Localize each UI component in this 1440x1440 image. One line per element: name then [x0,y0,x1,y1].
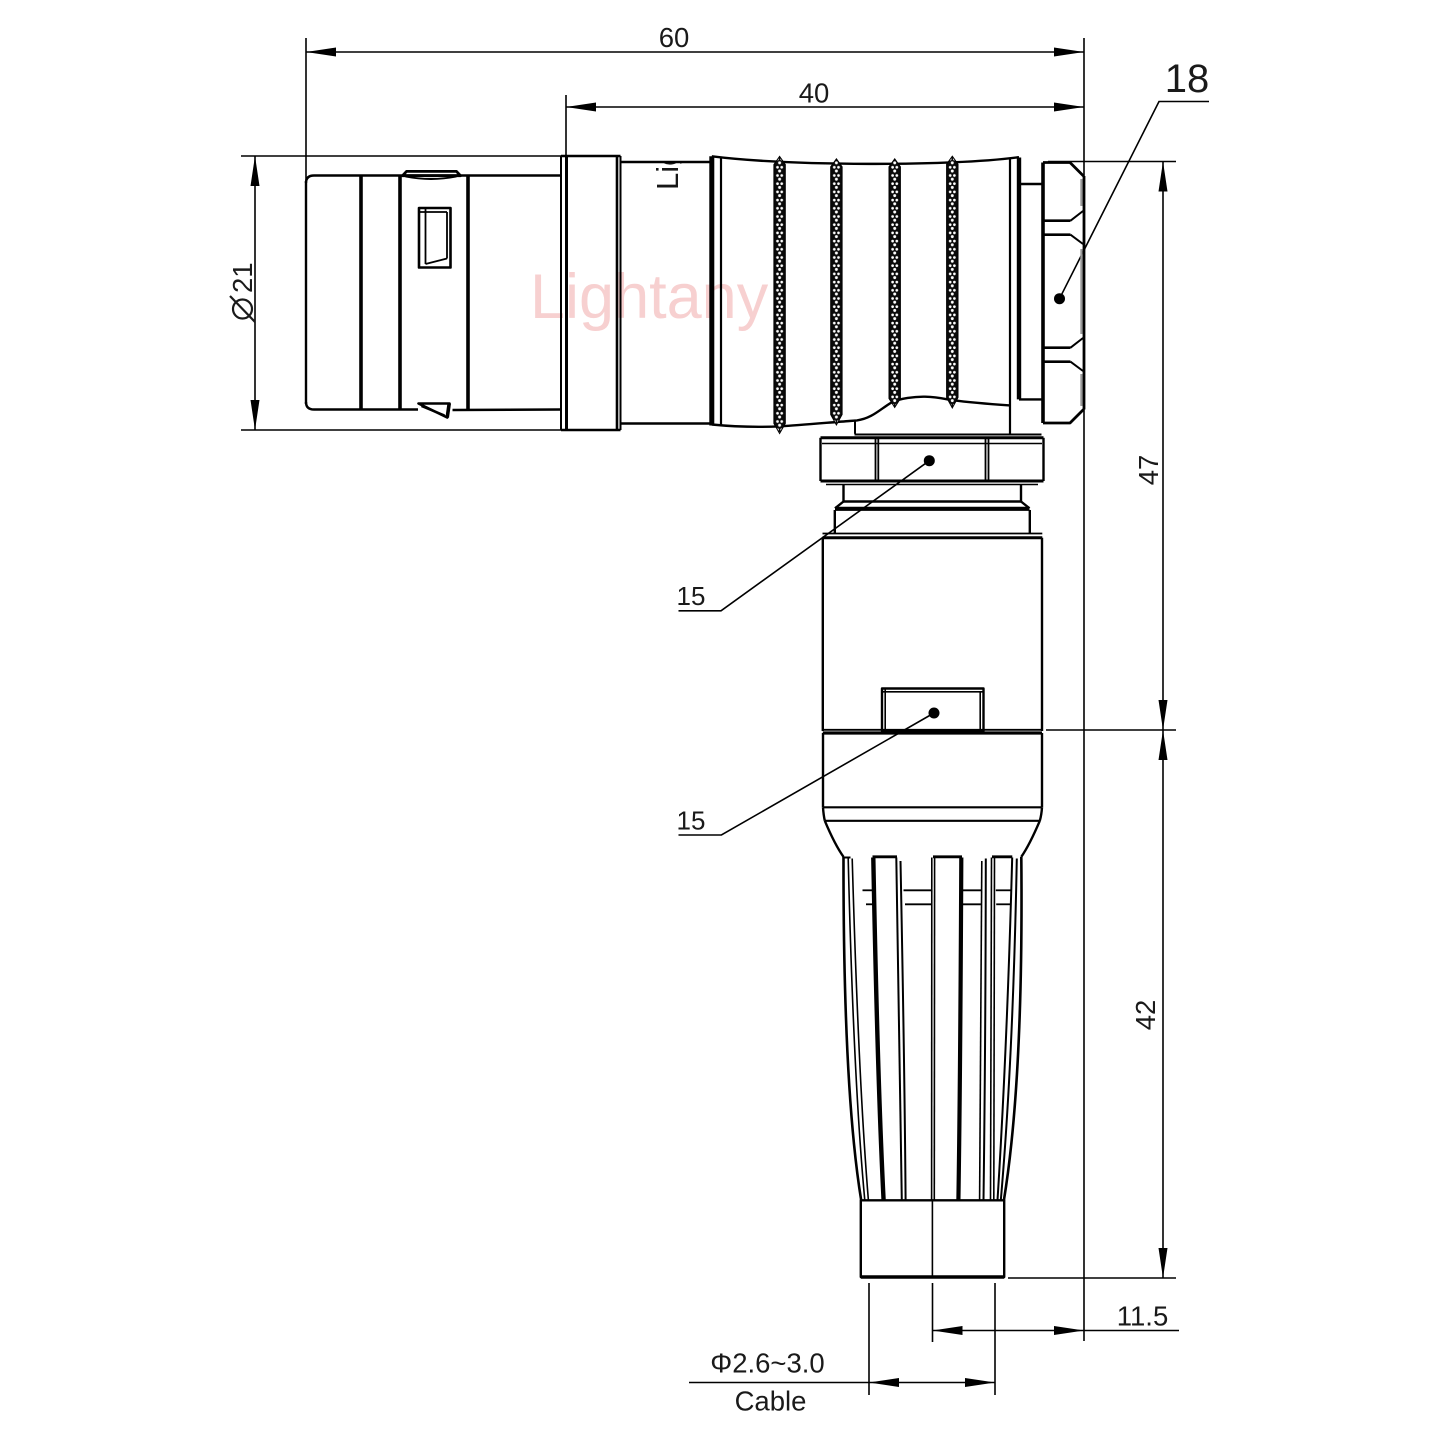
svg-text:40: 40 [799,78,830,109]
svg-text:47: 47 [1133,455,1164,486]
svg-text:Cable: Cable [735,1386,807,1417]
svg-text:Φ2.6~3.0: Φ2.6~3.0 [710,1348,824,1379]
svg-text:21: 21 [227,262,258,293]
svg-text:15: 15 [677,581,706,611]
svg-text:42: 42 [1130,1000,1161,1031]
svg-text:11.5: 11.5 [1117,1301,1168,1332]
svg-text:60: 60 [659,22,690,53]
svg-text:15: 15 [677,806,706,836]
svg-text:Lig: Lig [650,149,685,190]
svg-text:18: 18 [1165,57,1210,101]
